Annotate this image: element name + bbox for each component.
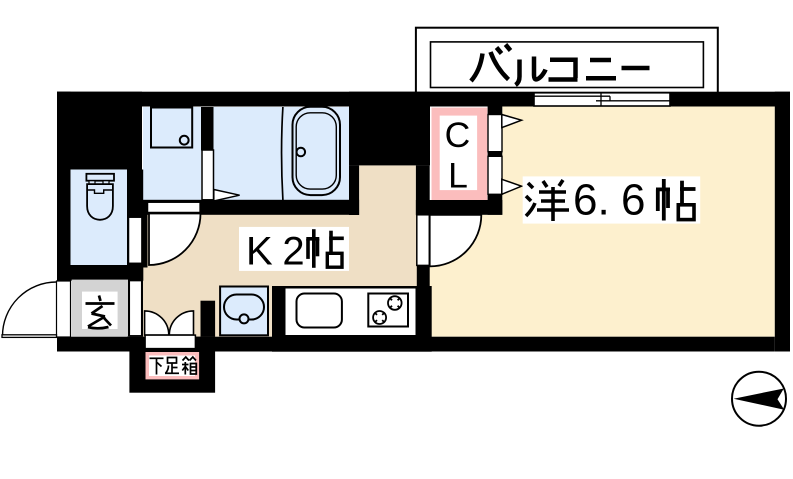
svg-text:C: C: [445, 115, 471, 155]
svg-text:K: K: [246, 230, 273, 274]
svg-text:6: 6: [621, 176, 645, 225]
svg-text:.: .: [597, 176, 609, 225]
svg-text:6: 6: [573, 176, 597, 225]
svg-text:L: L: [448, 155, 468, 195]
svg-text:2: 2: [282, 230, 304, 274]
